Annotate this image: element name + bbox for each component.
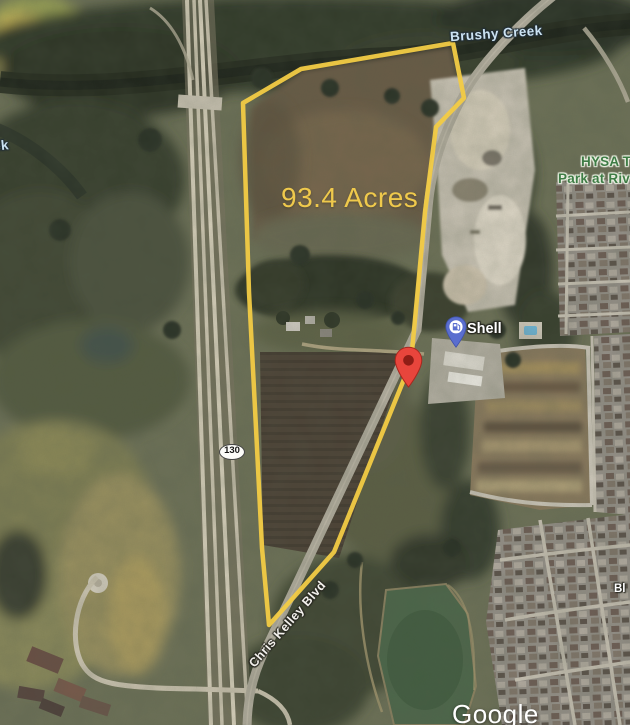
park-label-line2: Park at Riv (558, 172, 630, 186)
creek-label-partial: ek (0, 138, 10, 154)
satellite-imagery (0, 0, 630, 725)
map-canvas[interactable]: Brushy Creek ek 93.4 Acres HYSA T Park a… (0, 0, 630, 725)
street-label-partial: Bl (614, 583, 626, 595)
shell-fuel-pin-icon[interactable] (444, 316, 468, 348)
park-label-line1: HYSA T (581, 155, 630, 169)
grain-texture (0, 0, 630, 725)
highway-130-shield: 130 (219, 444, 245, 460)
parcel-acreage-label: 93.4 Acres (281, 183, 418, 212)
shell-poi-label[interactable]: Shell (467, 322, 502, 337)
google-watermark: Google (452, 701, 539, 725)
location-pin-icon[interactable] (393, 346, 424, 389)
